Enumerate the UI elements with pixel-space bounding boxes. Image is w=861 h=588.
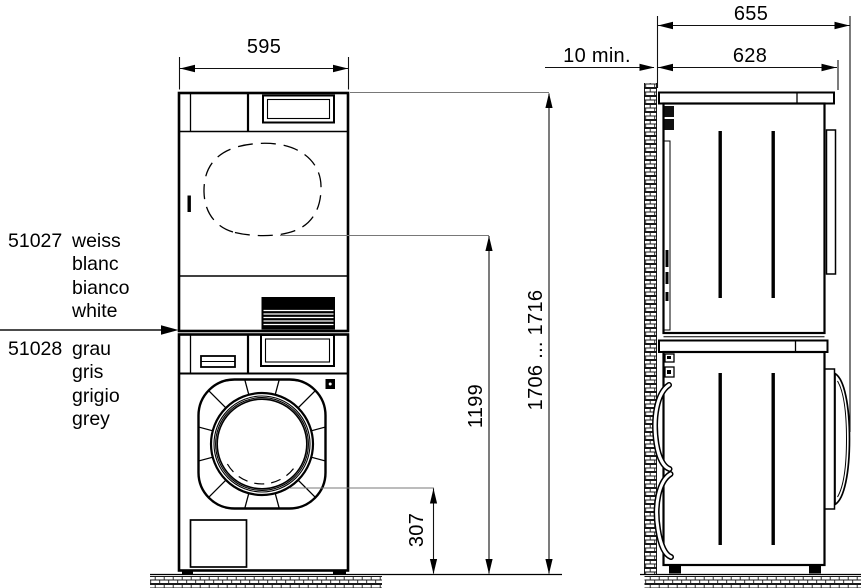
dim-front-width [180, 57, 349, 90]
color-name-it: grigio [66, 385, 120, 408]
washer-front [173, 335, 351, 575]
dryer-vent-grille [262, 297, 336, 330]
dim-label-front-width: 595 [247, 37, 281, 57]
dim-dryer-door-height [280, 236, 489, 574]
side-panel-grooves [719, 131, 775, 298]
color-name-en: white [66, 300, 129, 323]
dryer-display [263, 96, 334, 123]
dim-label-depth-total: 655 [734, 4, 768, 24]
model-number: 51028 [8, 338, 66, 361]
dryer-door-handle [188, 196, 191, 213]
washer-display [261, 335, 334, 366]
dim-label-wall-clearance: 10 min. [563, 46, 631, 66]
washer-side-door [825, 369, 835, 509]
dim-label-dryer-door-height: 1199 [466, 384, 486, 428]
stacked-washer-dryer-dimension-drawing: 51027 weiss blanc bianco white 51028 gra… [0, 0, 861, 588]
dryer-back-fittings [664, 106, 674, 330]
washer-side-feet [669, 565, 821, 574]
dim-label-depth-body: 628 [733, 46, 767, 66]
dim-label-washer-door-height: 307 [407, 513, 427, 547]
color-name-fr: blanc [66, 253, 129, 276]
front-view [150, 93, 562, 588]
dim-depth-total [658, 16, 851, 432]
dryer-side-door [827, 130, 836, 274]
model-number: 51027 [8, 230, 66, 253]
variant-white-label: 51027 weiss blanc bianco white [8, 230, 129, 323]
dim-total-height [350, 93, 549, 574]
ground-side [640, 575, 861, 588]
door-lock-indicator [326, 379, 336, 389]
color-name-de: weiss [66, 230, 129, 253]
dryer-side [659, 93, 836, 337]
variant-pointer-arrowhead [161, 325, 179, 334]
ground-front [150, 575, 562, 588]
color-name-de: grau [66, 338, 120, 361]
washer-side [655, 341, 849, 574]
side-panel-grooves [719, 373, 775, 545]
dim-label-total-height: 1706 ... 1716 [526, 290, 546, 411]
color-name-en: grey [66, 408, 120, 431]
dryer-front [179, 93, 348, 331]
washer-door [173, 355, 351, 533]
variant-grey-label: 51028 grau gris grigio grey [8, 338, 120, 431]
dryer-outline [179, 93, 348, 331]
dryer-door-dashed [204, 143, 321, 235]
color-name-it: bianco [66, 277, 129, 300]
service-flap [191, 520, 247, 567]
color-name-fr: gris [66, 361, 120, 384]
detergent-drawer [201, 356, 235, 367]
side-view [640, 83, 861, 588]
